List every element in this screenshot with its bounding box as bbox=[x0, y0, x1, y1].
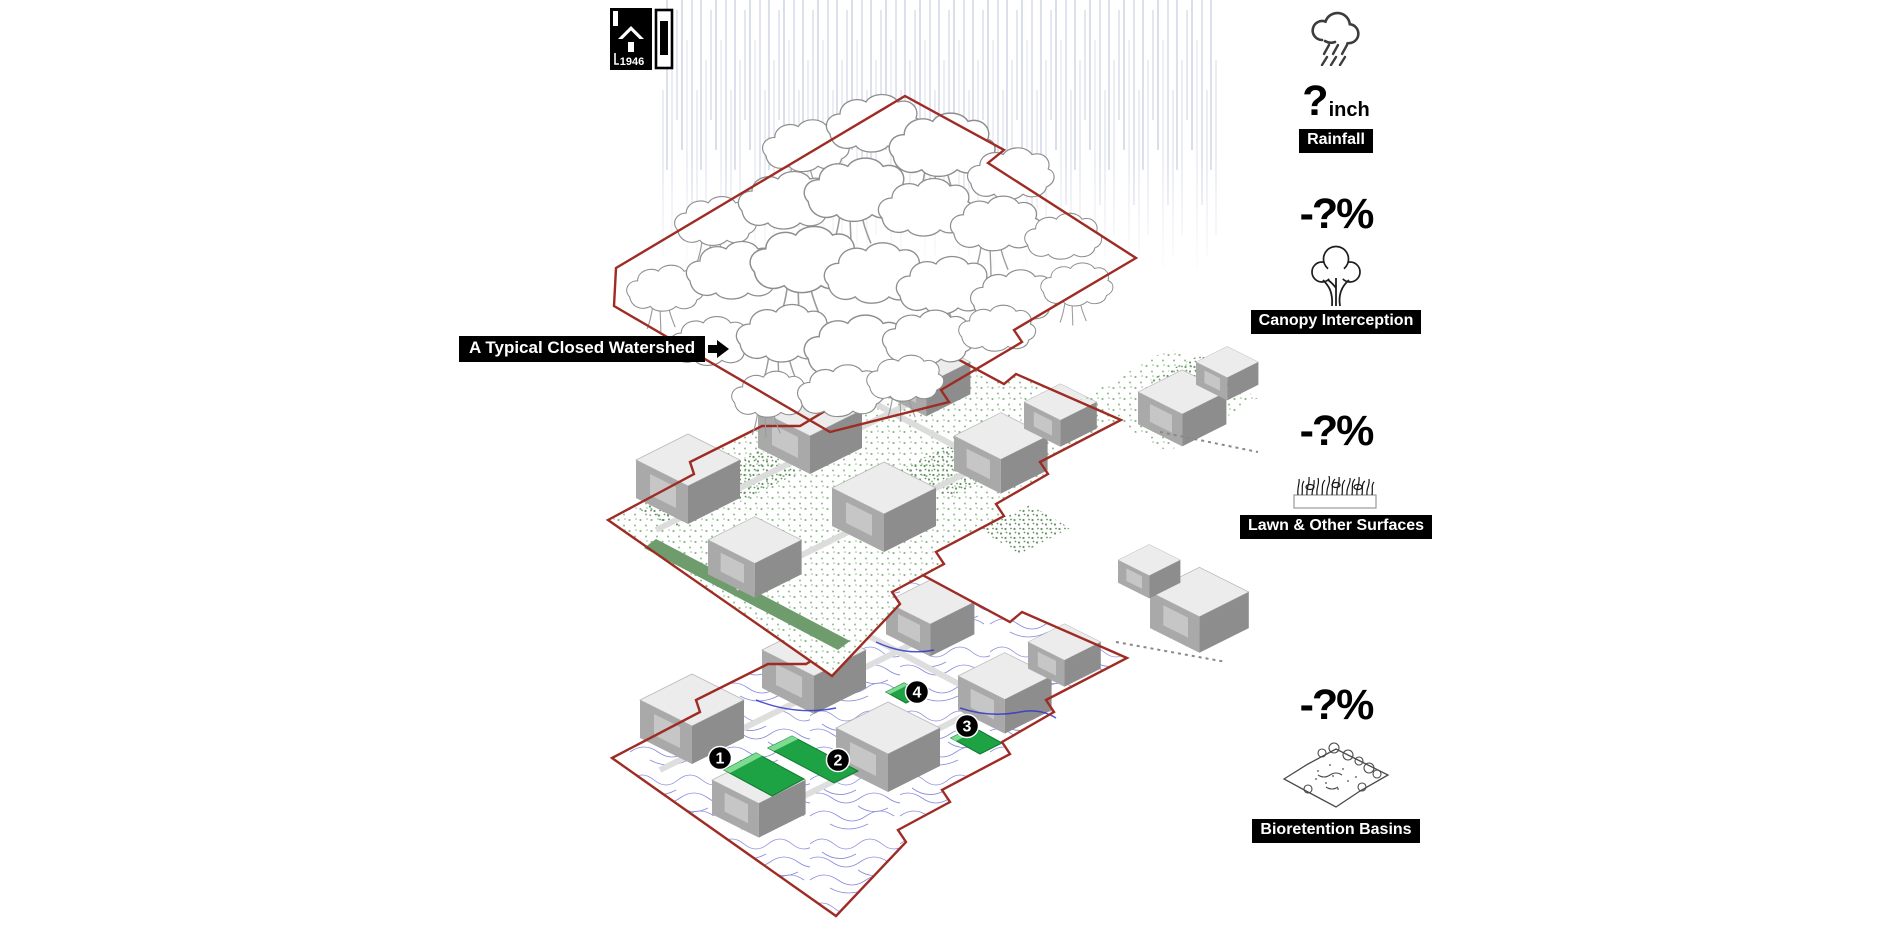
grass-planter-icon bbox=[1288, 467, 1384, 511]
canopy-label: Canopy Interception bbox=[1251, 310, 1422, 334]
diagram-canvas: 1 2 3 4 bbox=[0, 0, 1900, 927]
svg-text:4: 4 bbox=[913, 685, 922, 702]
middle-right-cluster bbox=[1080, 346, 1258, 452]
svg-text:1: 1 bbox=[716, 751, 725, 768]
rain-cloud-icon bbox=[1304, 8, 1368, 66]
rainfall-label: Rainfall bbox=[1299, 129, 1373, 153]
basin-marker-4: 4 bbox=[906, 681, 929, 704]
svg-text:2: 2 bbox=[834, 753, 843, 770]
tree-icon bbox=[1307, 244, 1365, 308]
svg-text:3: 3 bbox=[963, 719, 972, 736]
legend-canopy: -?% Canopy Interception bbox=[1240, 193, 1432, 334]
house-1946-logo: 1946 bbox=[610, 8, 676, 72]
lawn-label: Lawn & Other Surfaces bbox=[1240, 515, 1432, 539]
basin-marker-2: 2 bbox=[827, 749, 850, 772]
bioretention-label: Bioretention Basins bbox=[1252, 819, 1419, 843]
basin-marker-3: 3 bbox=[956, 715, 979, 738]
arrow-right-icon bbox=[708, 339, 730, 359]
svg-text:1946: 1946 bbox=[620, 56, 644, 68]
legend-bioretention: -?% Bioretention Basins bbox=[1240, 684, 1432, 843]
legend-rainfall: ? inch Rainfall bbox=[1240, 8, 1432, 153]
lawn-value: -?% bbox=[1300, 410, 1373, 453]
rainfall-value: ? inch bbox=[1302, 80, 1369, 123]
legend-lawn: -?% Lawn & Other Surfaces bbox=[1240, 410, 1432, 539]
bioretention-value: -?% bbox=[1300, 684, 1373, 727]
bioretention-basin-icon bbox=[1278, 731, 1394, 813]
layer-bioretention: 1 2 3 4 bbox=[612, 544, 1249, 916]
exploded-watershed-diagram: 1 2 3 4 bbox=[0, 0, 1900, 927]
canopy-value: -?% bbox=[1300, 193, 1373, 236]
watershed-callout: A Typical Closed Watershed bbox=[459, 336, 730, 362]
basin-marker-1: 1 bbox=[709, 747, 732, 770]
house-logo-graphic: 1946 bbox=[610, 8, 676, 72]
watershed-callout-label: A Typical Closed Watershed bbox=[459, 336, 705, 362]
